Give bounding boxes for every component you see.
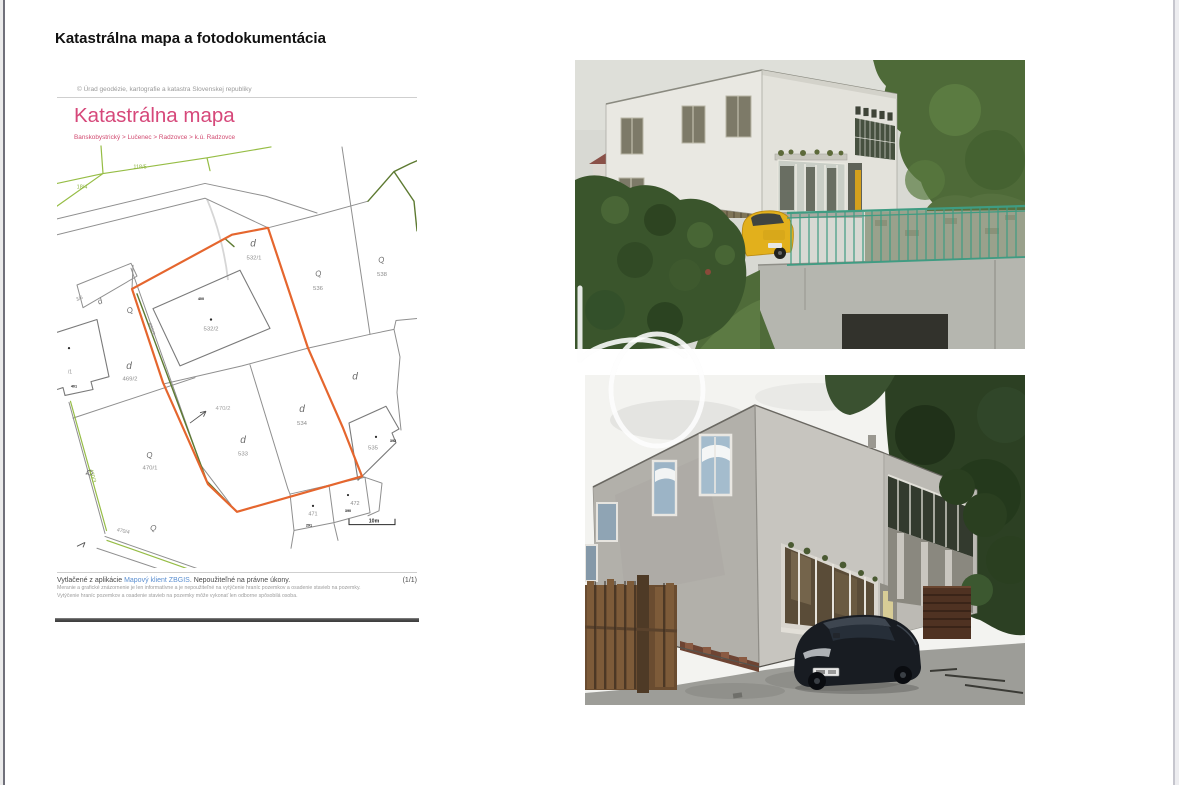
svg-text:/1: /1 <box>68 370 72 376</box>
yellow-car <box>742 211 793 259</box>
svg-text:470/1: 470/1 <box>143 465 159 471</box>
svg-text:d: d <box>240 435 246 446</box>
svg-text:536: 536 <box>313 286 324 292</box>
document-page: Katastrálna mapa a fotodokumentácia © Úr… <box>0 0 1179 785</box>
svg-text:Q: Q <box>125 305 134 316</box>
svg-text:Q: Q <box>314 269 322 279</box>
map-bottom-edge <box>55 618 419 622</box>
svg-text:470/2: 470/2 <box>216 406 231 412</box>
svg-text:469/2: 469/2 <box>123 377 138 383</box>
svg-text:532/1: 532/1 <box>247 255 263 261</box>
map-title: Katastrálna mapa <box>74 104 235 128</box>
svg-text:118/5: 118/5 <box>133 165 146 171</box>
highlighted-parcel-outline <box>132 228 362 512</box>
svg-text:535: 535 <box>368 446 379 452</box>
svg-text:291: 291 <box>306 524 312 528</box>
svg-text:18/4: 18/4 <box>77 184 88 190</box>
olive-boundary-lines <box>137 161 417 509</box>
svg-text:10m: 10m <box>369 519 380 525</box>
svg-text:Q: Q <box>377 255 385 265</box>
svg-text:532/2: 532/2 <box>204 326 219 332</box>
svg-text:533: 533 <box>238 452 249 458</box>
svg-text:400: 400 <box>198 297 204 301</box>
vegetation-lines <box>57 146 271 568</box>
map-header-rule <box>57 97 417 98</box>
building-outlines <box>57 270 399 480</box>
parcel-boundaries <box>57 147 417 568</box>
svg-text:d: d <box>96 296 104 306</box>
svg-text:3/6: 3/6 <box>75 295 84 303</box>
map-disclaimer-1: Meranie a grafické znázornenie je len in… <box>57 584 417 592</box>
svg-text:401: 401 <box>71 385 77 389</box>
page-title: Katastrálna mapa a fotodokumentácia <box>55 30 326 47</box>
photo-street-scene <box>575 60 1025 349</box>
svg-text:d: d <box>299 404 305 415</box>
page-indicator: (1/1) <box>403 577 417 584</box>
print-note-prefix: Vytlačené z aplikácie <box>57 577 124 584</box>
print-note-suffix: . Nepoužiteľné na právne úkony. <box>190 577 290 584</box>
brown-fence <box>923 587 971 639</box>
map-copyright: © Úrad geodézie, kartografie a katastra … <box>77 86 252 93</box>
svg-text:392: 392 <box>390 439 396 443</box>
page-edge-left <box>0 0 6 785</box>
svg-text:d: d <box>250 239 256 250</box>
svg-text:d: d <box>126 361 132 372</box>
svg-text:390: 390 <box>345 509 351 513</box>
svg-text:Q: Q <box>146 450 154 460</box>
svg-text:Q: Q <box>150 523 157 533</box>
wooden-fence <box>585 575 677 693</box>
photo-building-yard-side <box>585 375 1025 705</box>
svg-text:538: 538 <box>377 272 388 278</box>
entrance-canopy <box>775 154 847 160</box>
map-print-note: Vytlačené z aplikácie Mapový klient ZBGI… <box>57 577 290 584</box>
svg-text:472: 472 <box>350 501 359 507</box>
building-centroid-dots <box>68 318 377 507</box>
page-edge-right <box>1171 0 1179 785</box>
cadastral-map-panel: © Úrad geodézie, kartografie a katastra … <box>57 80 417 630</box>
photo-building-street-side <box>575 60 1025 349</box>
map-disclaimer-2: Vytýčenie hraníc pozemkov a osadenie sta… <box>57 592 417 600</box>
svg-text:534: 534 <box>297 421 308 427</box>
photo-yard-scene <box>585 375 1025 705</box>
map-footer: Vytlačené z aplikácie Mapový klient ZBGI… <box>57 572 417 601</box>
svg-text:d: d <box>352 372 358 383</box>
svg-text:471: 471 <box>308 512 317 518</box>
map-breadcrumb: Banskobystrický > Lučenec > Radzovce > k… <box>74 134 235 141</box>
bridge <box>758 257 1025 349</box>
black-car <box>794 615 921 694</box>
culvert-opening <box>842 314 948 349</box>
svg-text:470/4: 470/4 <box>116 527 130 536</box>
zbgis-link[interactable]: Mapový klient ZBGIS <box>124 577 190 584</box>
cadastral-map: 118/518/4470/3532/1d532/2536Q538Q469/2d4… <box>57 144 417 568</box>
